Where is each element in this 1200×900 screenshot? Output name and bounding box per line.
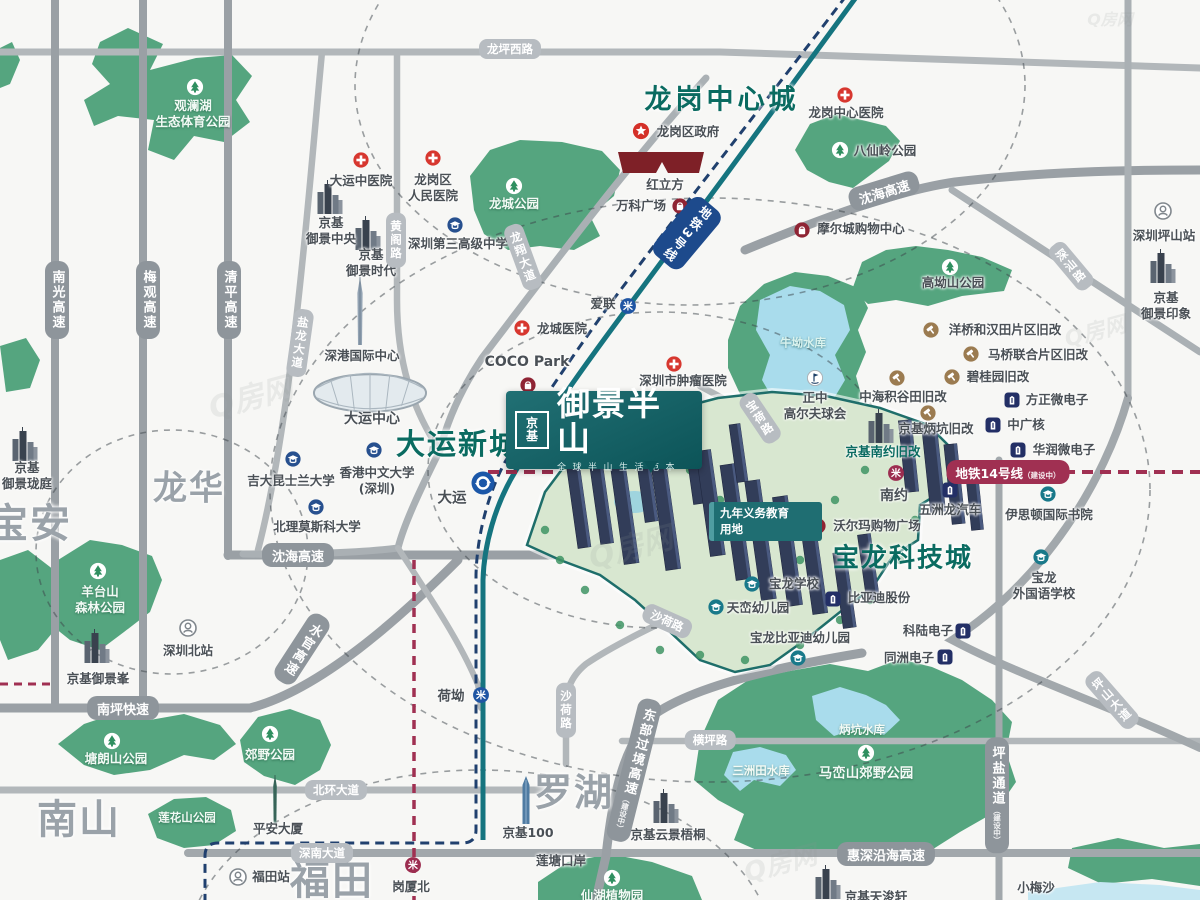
poi-jingji-yujing-impression-label: 京基御景印象 xyxy=(1141,290,1191,322)
poi-cuhk-shenzhen-label: 香港中文大学(深圳) xyxy=(339,465,414,497)
poi-biguiyuan-redev[interactable] xyxy=(944,369,960,385)
poi-heao-station[interactable]: 米 xyxy=(473,687,490,704)
poi-baolong-foreign-school[interactable] xyxy=(1033,549,1049,565)
poi-sz-no3-high-school[interactable] xyxy=(447,217,463,233)
road-label: 北环大道 xyxy=(305,780,367,800)
poi-longgang-gov-label: 龙岗区政府 xyxy=(657,124,720,140)
poi-moer-city-mall[interactable] xyxy=(794,222,810,238)
watermark: Q房网 xyxy=(583,513,677,578)
poi-baolong-byd-kindergarten[interactable] xyxy=(790,650,806,666)
education-plot-line2: 用地 xyxy=(720,522,816,538)
kingkey-logo: 京 基 xyxy=(515,411,549,449)
poi-jingji-yujing-longting-label: 京基御景珑庭 xyxy=(2,460,52,492)
svg-text:米: 米 xyxy=(623,300,633,313)
area-label: 大运新城 xyxy=(396,421,520,463)
poi-guanlanhu-park[interactable] xyxy=(187,79,204,96)
poi-baolong-school[interactable] xyxy=(744,576,760,592)
poi-sz-tumor-hospital[interactable] xyxy=(666,356,682,372)
watermark: Q房网 xyxy=(1087,6,1133,30)
poi-bit-moscow-univ[interactable] xyxy=(308,499,324,515)
property-subtitle: 全球半山生活范本 xyxy=(557,460,693,473)
poi-yangtaishan-forest-park-label: 羊台山森林公园 xyxy=(75,584,125,616)
poi-hong-li-fang[interactable] xyxy=(616,150,708,174)
poi-gaoaoshan-park-label: 高坳山公园 xyxy=(922,275,985,291)
poi-zhongguanghe-label: 中广核 xyxy=(1007,417,1045,433)
poi-jingji-yujing-central-label: 京基御景中央 xyxy=(306,215,356,247)
road-label: 坪盐通道（建设中） xyxy=(985,737,1009,853)
poi-huarun-micro-label: 华润微电子 xyxy=(1033,442,1096,458)
poi-jingji-yujing-longting[interactable] xyxy=(12,427,39,461)
poi-tongzhou-electronics[interactable] xyxy=(938,650,953,665)
poi-jingji-100[interactable] xyxy=(519,776,534,824)
road-label: 清平高速 xyxy=(217,261,241,339)
poi-longgang-central-hospital-label: 龙岗中心医院 xyxy=(808,105,883,121)
poi-bingkeng-reservoir-label[interactable]: 炳坑水库 xyxy=(839,723,885,738)
poi-easton-intl-college[interactable] xyxy=(1040,486,1056,502)
area-label: 宝龙科技城 xyxy=(833,538,973,575)
education-plot-box: 九年义务教育 用地 xyxy=(709,502,822,541)
road-label: 沈海高速 xyxy=(846,169,922,213)
poi-baolong-foreign-school-label: 宝龙外国语学校 xyxy=(1013,570,1076,602)
poi-jingji-yujing-feng-label: 京基御景峯 xyxy=(67,671,130,687)
poi-longcheng-hospital-label: 龙城医院 xyxy=(537,321,587,337)
poi-gangxiabei-station-label: 岗厦北 xyxy=(392,879,430,895)
poi-byd-co-label: 比亚迪股份 xyxy=(848,590,911,606)
poi-walmart-plaza-label: 沃尔玛购物广场 xyxy=(833,518,921,534)
poi-zhonghai-jigutian-redev[interactable] xyxy=(889,370,905,386)
poi-shengang-intl-center[interactable] xyxy=(354,277,366,345)
poi-sz-no3-high-school-label: 深圳第三高级中学 xyxy=(408,236,508,252)
poi-byd-co[interactable] xyxy=(826,592,841,607)
poi-xianhu-botanical-garden[interactable] xyxy=(604,870,621,887)
poi-yangtaishan-forest-park[interactable] xyxy=(90,563,107,580)
poi-xianhu-botanical-garden-label: 仙湖植物园 xyxy=(581,888,644,900)
poi-ailian-station-label: 爱联 xyxy=(590,296,615,312)
road-label: 宝荷路 xyxy=(736,390,783,446)
poi-longgang-people-hospital[interactable] xyxy=(425,150,441,166)
poi-vanke-plaza-label: 万科广场 xyxy=(616,198,666,214)
road-label: 水官高速 xyxy=(271,610,334,688)
poi-wuzhoulong-auto-label: 五洲龙汽车 xyxy=(919,502,982,518)
area-label: 龙华 xyxy=(153,461,225,510)
poi-baolong-byd-kindergarten-label: 宝龙比亚迪幼儿园 xyxy=(750,630,850,646)
poi-jingji-yujing-era[interactable] xyxy=(355,216,382,250)
poi-sz-north-station-label: 深圳北站 xyxy=(163,643,213,659)
poi-xiaomeisha-label[interactable]: 小梅沙 xyxy=(1017,880,1055,896)
poi-biguiyuan-redev-label: 碧桂园旧改 xyxy=(967,369,1030,385)
poi-sz-north-station[interactable] xyxy=(179,619,197,637)
poi-maluanshan-park[interactable] xyxy=(858,745,875,762)
road-label: 龙坪西路 xyxy=(479,39,541,59)
road-label: 深汕路 xyxy=(1046,239,1096,294)
poi-yangqiao-hantian-redev[interactable] xyxy=(923,322,939,338)
road-label: 南光高速 xyxy=(45,261,69,339)
poi-longgang-people-hospital-label: 龙岗区人民医院 xyxy=(408,172,458,204)
road-label: 南坪快速 xyxy=(87,696,159,720)
poi-cuhk-shenzhen[interactable] xyxy=(366,442,382,458)
poi-shengang-intl-center-label: 深港国际中心 xyxy=(324,348,399,364)
poi-longgang-gov[interactable] xyxy=(633,123,650,140)
poi-hong-li-fang-label: 红立方 xyxy=(646,177,684,193)
svg-text:米: 米 xyxy=(408,859,418,872)
poi-pingan-tower[interactable] xyxy=(270,775,280,823)
poi-zhongguanghe[interactable] xyxy=(986,418,1001,433)
poi-tanglangshan-park-label: 塘朗山公园 xyxy=(85,751,148,767)
road-label: 龙翔大道 xyxy=(502,222,544,293)
poi-wuzhoulong-auto[interactable] xyxy=(943,483,958,498)
poi-longcheng-park-label: 龙城公园 xyxy=(489,196,539,212)
poi-jingji-bingkeng-redev[interactable] xyxy=(920,405,936,421)
svg-text:米: 米 xyxy=(476,689,486,702)
poi-lianhuashan-park-label[interactable]: 莲花山公园 xyxy=(158,811,216,826)
poi-jingji-yujing-feng[interactable] xyxy=(84,629,111,663)
poi-jingji-yunjing-wutong-label: 京基云景梧桐 xyxy=(630,827,705,843)
poi-jingji-nanyue-redev[interactable] xyxy=(868,409,895,443)
education-plot-line1: 九年义务教育 xyxy=(720,506,816,522)
poi-jingji-nanyue-redev-label: 京基南约旧改 xyxy=(845,444,920,460)
poi-sz-pingshan-station[interactable] xyxy=(1154,202,1172,220)
poi-jingji-tianjunxuan[interactable] xyxy=(815,865,842,899)
poi-yangqiao-hantian-redev-label: 洋桥和汉田片区旧改 xyxy=(949,322,1062,338)
road-label: 黄阁路 xyxy=(386,213,406,268)
poi-dayun-center-stadium-label: 大运中心 xyxy=(344,411,400,429)
banner-pointer xyxy=(644,461,658,480)
poi-zhengzhong-golf-club[interactable] xyxy=(807,370,823,386)
poi-nanyue-station[interactable]: 米 xyxy=(888,465,905,482)
poi-tanglangshan-park[interactable] xyxy=(104,733,121,750)
poi-sz-pingshan-station-label: 深圳坪山站 xyxy=(1133,228,1196,244)
poi-futian-station[interactable] xyxy=(229,868,247,886)
metro-line-label: 地铁14号线（建设中） xyxy=(947,460,1070,484)
area-label: 罗湖 xyxy=(534,762,614,817)
poi-ailian-station[interactable]: 米 xyxy=(620,298,637,315)
property-banner[interactable]: 京 基 御景半山 全球半山生活范本 xyxy=(506,391,702,469)
poi-jiaoye-park[interactable] xyxy=(262,726,279,743)
road-label: 沙荷路 xyxy=(640,602,694,641)
area-label: 南山 xyxy=(37,787,121,845)
poi-niuao-reservoir-label[interactable]: 牛坳水库 xyxy=(780,336,826,351)
poi-fangzheng-micro-label: 方正微电子 xyxy=(1026,392,1089,408)
poi-kelu-electronics[interactable] xyxy=(956,624,971,639)
poi-longgang-central-hospital[interactable] xyxy=(837,87,853,103)
road-label: 沙荷路 xyxy=(556,683,576,738)
poi-futian-station-label: 福田站 xyxy=(252,869,290,885)
area-label: 龙岗中心城 xyxy=(645,78,800,117)
poi-sanzhoutian-reservoir-label[interactable]: 三洲田水库 xyxy=(732,764,790,779)
poi-maluanshan-park-label: 马峦山郊野公园 xyxy=(819,765,914,782)
poi-maqiao-redev[interactable] xyxy=(963,346,979,362)
road-label: 梅观高速 xyxy=(136,261,160,339)
poi-baxianling-park-label: 八仙岭公园 xyxy=(854,143,917,159)
map-canvas: Q房网Q房网Q房网Q房网Q房网龙岗中心城大运新城宝龙科技城宝安龙华南山福田罗湖龙… xyxy=(0,0,1200,900)
road-label: 横坪路 xyxy=(685,730,736,750)
poi-liantang-port-label[interactable]: 莲塘口岸 xyxy=(536,853,586,869)
poi-jingji-100-label: 京基100 xyxy=(502,825,553,841)
poi-dayun-station-label: 大运 xyxy=(438,490,467,509)
poi-jiaoye-park-label: 郊野公园 xyxy=(245,747,295,763)
poi-jingji-bingkeng-redev-label: 京基炳坑旧改 xyxy=(898,421,973,437)
poi-pingan-tower-label: 平安大厦 xyxy=(253,821,303,837)
poi-coco-park-label: COCO Park xyxy=(485,354,570,372)
poi-zhonghai-jigutian-redev-label: 中海积谷田旧改 xyxy=(859,389,947,405)
poi-tongzhou-electronics-label: 同洲电子 xyxy=(884,650,934,666)
poi-dayun-tcm-hospital-label: 大运中医院 xyxy=(330,173,393,189)
poi-jida-queensland-univ-label: 吉大昆士兰大学 xyxy=(247,473,335,489)
poi-tianluan-kindergarten-label: 天峦幼儿园 xyxy=(727,600,790,616)
watermark: Q房网 xyxy=(203,363,297,428)
road-label: 沈海高速 xyxy=(262,543,334,567)
poi-jingji-tianjunxuan-label: 京基天浚轩 xyxy=(845,889,908,900)
poi-easton-intl-college-label: 伊思顿国际书院 xyxy=(1005,507,1093,523)
poi-jida-queensland-univ[interactable] xyxy=(285,451,301,467)
poi-fangzheng-micro[interactable] xyxy=(1005,393,1020,408)
watermark: Q房网 xyxy=(739,835,820,890)
poi-longcheng-park[interactable] xyxy=(506,178,523,195)
poi-dayun-center-stadium[interactable] xyxy=(311,368,429,414)
poi-baxianling-park[interactable] xyxy=(832,142,849,159)
road-label: 坪山大道 xyxy=(1082,668,1142,732)
poi-huarun-micro[interactable] xyxy=(1011,443,1026,458)
poi-gangxiabei-station[interactable]: 米 xyxy=(405,857,422,874)
poi-heao-station-label: 荷坳 xyxy=(438,688,465,705)
property-banner-text: 御景半山 全球半山生活范本 xyxy=(557,387,693,472)
poi-gaoaoshan-park[interactable] xyxy=(942,259,959,276)
poi-longcheng-hospital[interactable] xyxy=(514,320,530,336)
svg-text:米: 米 xyxy=(891,467,901,480)
poi-jingji-yunjing-wutong[interactable] xyxy=(653,789,680,823)
poi-tianluan-kindergarten[interactable] xyxy=(708,599,724,615)
poi-dayun-station[interactable] xyxy=(471,471,495,495)
poi-bit-moscow-univ-label: 北理莫斯科大学 xyxy=(273,519,361,535)
poi-maqiao-redev-label: 马桥联合片区旧改 xyxy=(988,347,1088,363)
property-title: 御景半山 xyxy=(557,387,693,456)
poi-guanlanhu-park-label: 观澜湖生态体育公园 xyxy=(155,98,230,130)
poi-nanyue-station-label: 南约 xyxy=(880,488,908,506)
poi-baolong-school-label: 宝龙学校 xyxy=(769,576,819,592)
area-label: 宝安 xyxy=(0,491,72,549)
poi-jingji-yujing-impression[interactable] xyxy=(1150,249,1177,283)
road-label: 深南大道 xyxy=(291,843,353,863)
poi-dayun-tcm-hospital[interactable] xyxy=(353,152,369,168)
poi-moer-city-mall-label: 摩尔城购物中心 xyxy=(817,221,905,237)
road-label: 惠深沿海高速 xyxy=(837,842,935,866)
poi-zhengzhong-golf-club-label: 正中高尔夫球会 xyxy=(784,390,847,422)
poi-kelu-electronics-label: 科陆电子 xyxy=(903,623,953,639)
